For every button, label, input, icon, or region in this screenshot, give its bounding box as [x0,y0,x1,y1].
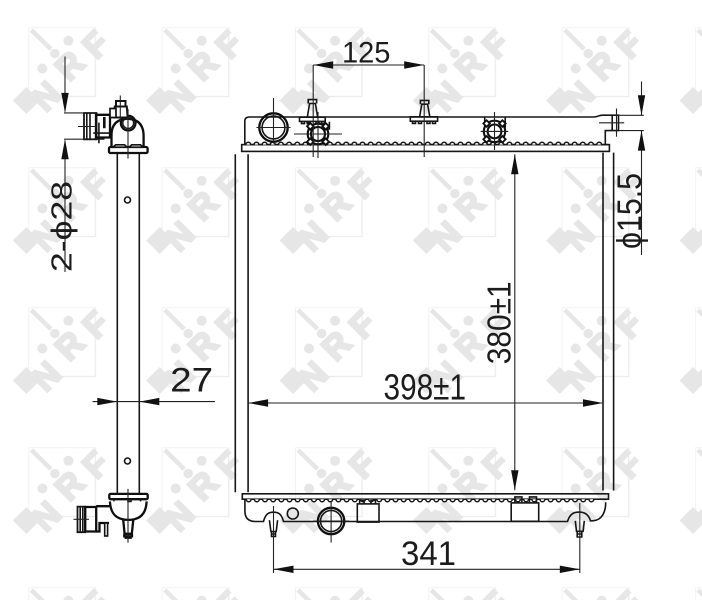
svg-text:125: 125 [342,37,391,70]
svg-text:341: 341 [401,535,456,573]
svg-text:380±1: 380±1 [481,281,518,364]
svg-text:2-ϕ28: 2-ϕ28 [47,181,79,272]
svg-text:398±1: 398±1 [384,367,467,408]
svg-text:27: 27 [170,362,213,400]
svg-text:ϕ15.5: ϕ15.5 [611,173,649,249]
